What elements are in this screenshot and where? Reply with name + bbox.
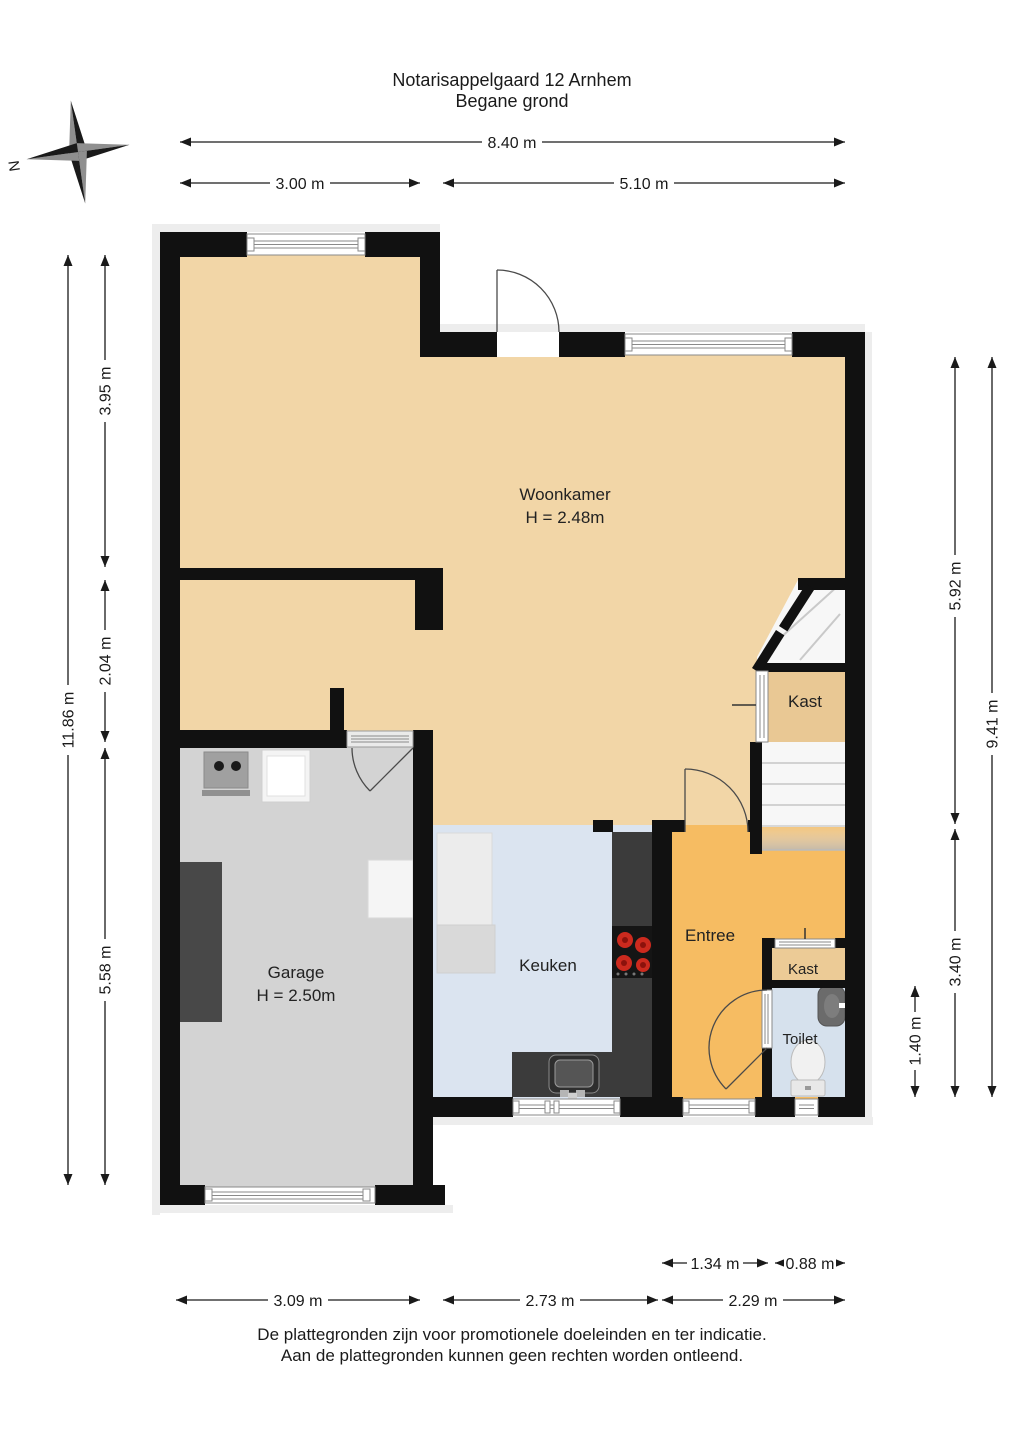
compass-rose-icon: N: [0, 93, 137, 213]
label-keuken: Keuken: [519, 956, 577, 975]
dim-left-total: 11.86 m: [61, 692, 78, 749]
kitchen-cabinet-icon: [437, 833, 492, 925]
window-keuken-bottom: [513, 1099, 620, 1115]
workbench-icon: [180, 862, 222, 1022]
dim-left-upper: 3.95 m: [98, 367, 115, 416]
stove-icon: [612, 926, 652, 978]
garage-door: [205, 1187, 375, 1203]
floorplan-page: Notarisappelgaard 12 Arnhem Begane grond…: [0, 0, 1018, 1440]
door-north-exterior: [497, 270, 559, 332]
window-woonkamer-top: [247, 234, 365, 255]
label-kast-upper: Kast: [788, 692, 822, 711]
dim-bottom-keuken: 2.73 m: [526, 1293, 575, 1310]
window-entree-bottom: [683, 1099, 755, 1115]
label-woonkamer: Woonkamer: [519, 485, 611, 504]
label-woonkamer-height: H = 2.48m: [526, 508, 605, 527]
floorplan-canvas: Notarisappelgaard 12 Arnhem Begane grond…: [0, 0, 1018, 1440]
dim-right-total: 9.41 m: [985, 700, 1002, 749]
label-kast-lower: Kast: [788, 961, 819, 978]
kitchen-cabinet2-icon: [437, 925, 495, 973]
dim-top-total: 8.40 m: [488, 135, 537, 152]
footer-disclaimer-2: Aan de plattegronden kunnen geen rechten…: [281, 1346, 743, 1365]
dim-bottom-entree: 2.29 m: [729, 1293, 778, 1310]
dim-bottom-toilet: 0.88 m: [786, 1256, 835, 1273]
glass-door-garage: [347, 731, 413, 747]
compass-north-label: N: [6, 159, 24, 172]
dim-bottom-garage: 3.09 m: [274, 1293, 323, 1310]
toilet-door-panel: [762, 990, 772, 1048]
label-garage: Garage: [268, 963, 325, 982]
dim-left-lower: 5.58 m: [98, 946, 115, 995]
footer-disclaimer-1: De plattegronden zijn voor promotionele …: [257, 1325, 766, 1344]
garage-table-icon: [368, 860, 413, 918]
dim-top-left: 3.00 m: [276, 176, 325, 193]
label-toilet: Toilet: [782, 1031, 818, 1048]
dim-left-middle: 2.04 m: [98, 637, 115, 686]
dim-right-upper: 5.92 m: [948, 562, 965, 611]
dim-right-lower: 3.40 m: [948, 938, 965, 987]
rooms: [170, 238, 857, 1195]
dim-bottom-kast: 1.34 m: [691, 1256, 740, 1273]
dim-top-right: 5.10 m: [620, 176, 669, 193]
dim-right-toilet: 1.40 m: [908, 1017, 925, 1066]
window-woonkamer-right-top: [625, 334, 792, 355]
toilet-bowl-icon: [791, 1040, 825, 1096]
label-entree: Entree: [685, 926, 735, 945]
boiler-icon: [204, 752, 248, 788]
plan-subtitle: Begane grond: [455, 91, 568, 111]
toilet-sink-icon: [818, 986, 846, 1026]
entry-door-threshold: [497, 332, 559, 357]
window-toilet-bottom: [795, 1099, 818, 1115]
label-garage-height: H = 2.50m: [257, 986, 336, 1005]
plan-title: Notarisappelgaard 12 Arnhem: [392, 70, 631, 90]
